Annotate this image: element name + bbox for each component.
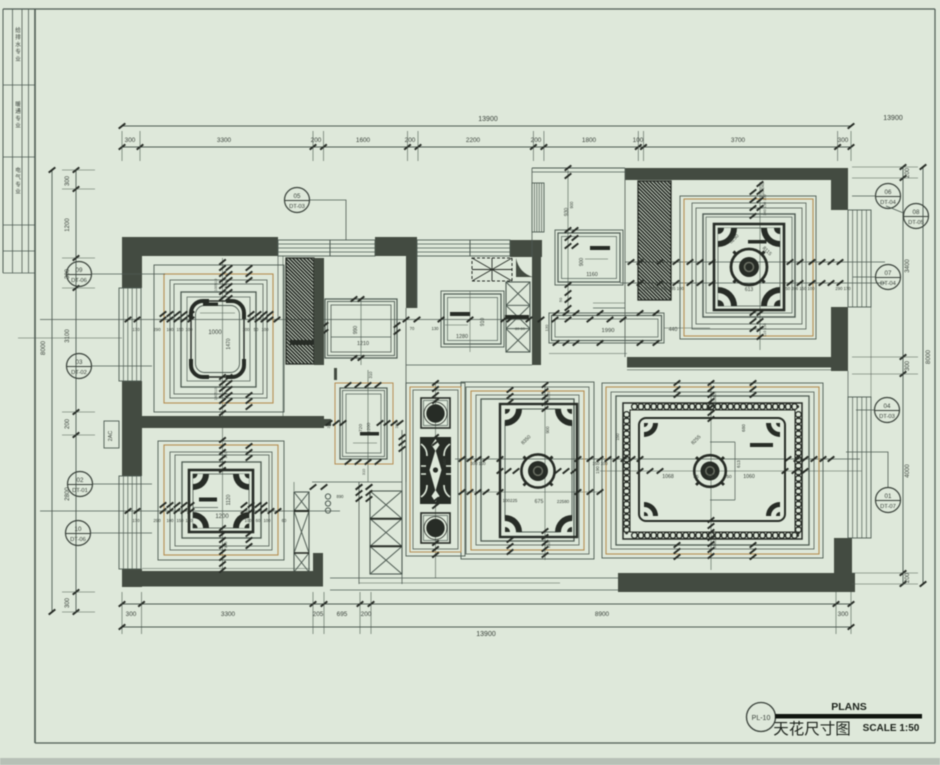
svg-text:130: 130 [544, 324, 549, 331]
svg-text:DT-04: DT-04 [880, 281, 897, 287]
svg-text:22580: 22580 [557, 499, 570, 504]
svg-text:1200: 1200 [366, 422, 372, 433]
svg-text:200: 200 [405, 137, 416, 144]
svg-text:电: 电 [15, 166, 21, 174]
svg-text:8310: 8310 [547, 392, 551, 400]
svg-text:业: 业 [15, 55, 21, 63]
svg-text:290 170: 290 170 [835, 286, 851, 291]
svg-text:210: 210 [326, 421, 331, 428]
svg-text:水: 水 [15, 40, 21, 48]
svg-text:1200: 1200 [215, 514, 229, 520]
svg-text:170: 170 [132, 518, 140, 523]
svg-text:100: 100 [262, 327, 270, 332]
svg-text:暖: 暖 [15, 100, 21, 108]
svg-text:气: 气 [15, 173, 21, 181]
svg-text:业: 业 [15, 188, 21, 196]
svg-text:300: 300 [65, 268, 71, 279]
svg-text:2AC: 2AC [108, 431, 114, 442]
svg-text:890: 890 [337, 494, 345, 499]
svg-text:10: 10 [75, 526, 82, 533]
svg-text:DT-07: DT-07 [880, 504, 896, 510]
svg-text:业: 业 [15, 122, 21, 130]
svg-text:300: 300 [838, 611, 849, 618]
svg-text:150 100: 150 100 [592, 461, 608, 466]
svg-text:30810810: 30810810 [713, 532, 717, 549]
svg-text:310: 310 [547, 542, 551, 548]
svg-text:1060: 1060 [743, 474, 755, 480]
svg-text:1200: 1200 [65, 218, 71, 232]
svg-text:310: 310 [223, 451, 228, 458]
svg-text:8000: 8000 [925, 349, 932, 364]
svg-text:290: 290 [153, 518, 161, 523]
svg-text:50: 50 [254, 327, 259, 332]
svg-text:613: 613 [736, 460, 741, 468]
svg-text:PLANS: PLANS [831, 701, 867, 713]
svg-text:720: 720 [358, 424, 364, 432]
svg-text:200: 200 [311, 137, 322, 144]
svg-text:DT-01: DT-01 [72, 488, 88, 494]
svg-text:300: 300 [125, 137, 136, 144]
svg-text:60: 60 [282, 518, 287, 523]
svg-text:150: 150 [177, 518, 185, 523]
svg-text:01: 01 [885, 493, 892, 500]
svg-text:100 150 100 285 100: 100 150 100 285 100 [644, 286, 684, 291]
svg-text:03: 03 [76, 359, 83, 366]
svg-text:440: 440 [442, 458, 447, 466]
svg-text:60: 60 [256, 518, 261, 523]
svg-text:310: 310 [223, 390, 228, 397]
svg-text:05: 05 [294, 193, 301, 200]
svg-text:200: 200 [361, 611, 372, 618]
svg-text:13900: 13900 [478, 116, 498, 123]
svg-text:13900: 13900 [883, 115, 903, 122]
svg-text:200: 200 [905, 167, 911, 178]
svg-text:3700: 3700 [731, 137, 746, 144]
svg-text:100: 100 [245, 518, 253, 523]
svg-text:340 150 100: 340 150 100 [763, 194, 767, 215]
svg-text:100: 100 [243, 327, 251, 332]
svg-text:3100: 3100 [65, 329, 71, 343]
svg-text:300: 300 [838, 137, 849, 144]
svg-text:35: 35 [693, 474, 699, 480]
svg-text:1470: 1470 [226, 338, 232, 349]
svg-text:100: 100 [167, 327, 175, 332]
svg-text:50 286 150 100: 50 286 150 100 [785, 286, 815, 291]
svg-text:2200: 2200 [466, 137, 481, 144]
svg-text:DT-05: DT-05 [908, 220, 924, 226]
svg-text:280: 280 [394, 421, 399, 428]
svg-text:100510: 100510 [214, 279, 218, 292]
svg-text:专: 专 [15, 114, 21, 122]
svg-text:通: 通 [15, 107, 21, 115]
svg-text:08: 08 [913, 209, 920, 216]
svg-text:04: 04 [884, 403, 891, 410]
svg-text:100: 100 [633, 137, 644, 144]
svg-text:1210: 1210 [357, 341, 369, 347]
svg-text:300: 300 [126, 611, 137, 618]
svg-text:613: 613 [745, 287, 754, 293]
svg-text:340: 340 [223, 541, 228, 548]
svg-text:DT-06: DT-06 [71, 278, 87, 284]
svg-text:910: 910 [480, 318, 486, 327]
svg-text:675: 675 [535, 499, 544, 505]
svg-text:1068: 1068 [662, 474, 674, 480]
svg-text:1990: 1990 [602, 328, 615, 334]
svg-text:1800: 1800 [582, 137, 597, 144]
svg-text:310: 310 [368, 371, 373, 379]
svg-text:天花尺寸图: 天花尺寸图 [773, 720, 851, 738]
svg-text:02: 02 [77, 477, 84, 484]
svg-text:100: 100 [186, 518, 194, 523]
svg-text:给: 给 [15, 26, 21, 34]
svg-text:50: 50 [558, 297, 563, 302]
svg-text:205: 205 [313, 611, 324, 618]
svg-text:310: 310 [362, 469, 366, 475]
svg-text:DT-04: DT-04 [880, 200, 897, 206]
svg-text:DT-03: DT-03 [879, 414, 895, 420]
svg-text:06: 06 [885, 189, 892, 196]
svg-text:170: 170 [132, 327, 140, 332]
svg-text:200: 200 [65, 418, 71, 429]
svg-text:3400: 3400 [905, 259, 911, 273]
svg-text:8000: 8000 [40, 340, 47, 355]
svg-text:180510: 180510 [214, 388, 218, 401]
svg-text:专: 专 [15, 180, 21, 188]
svg-text:PL-10: PL-10 [752, 715, 771, 722]
svg-text:30810810: 30810810 [713, 392, 717, 409]
svg-text:DT-06: DT-06 [70, 537, 86, 543]
svg-text:150: 150 [615, 433, 620, 441]
svg-text:100: 100 [186, 327, 194, 332]
svg-text:专: 专 [15, 48, 21, 56]
svg-text:80 60: 80 60 [515, 326, 526, 331]
svg-text:300: 300 [65, 597, 71, 608]
svg-text:8900: 8900 [595, 611, 610, 618]
svg-text:200: 200 [905, 572, 911, 583]
svg-text:50: 50 [726, 474, 732, 480]
svg-text:290: 290 [153, 327, 161, 332]
svg-text:1280: 1280 [456, 334, 468, 340]
svg-text:190: 190 [595, 466, 600, 474]
svg-text:300 150: 300 150 [470, 461, 486, 466]
svg-text:695: 695 [337, 611, 348, 618]
svg-text:150: 150 [177, 327, 185, 332]
svg-text:130: 130 [432, 326, 440, 331]
svg-text:1000: 1000 [208, 330, 222, 336]
svg-text:1160: 1160 [586, 272, 598, 278]
svg-text:1600: 1600 [356, 137, 371, 144]
svg-text:3300: 3300 [217, 137, 232, 144]
svg-text:900: 900 [569, 201, 574, 209]
svg-text:300: 300 [65, 175, 71, 186]
svg-text:DT-02: DT-02 [71, 370, 87, 376]
svg-text:110 150: 110 150 [763, 323, 767, 336]
svg-text:70: 70 [410, 326, 415, 331]
svg-text:100: 100 [167, 518, 175, 523]
svg-text:300: 300 [905, 360, 911, 371]
svg-text:680: 680 [741, 424, 746, 432]
svg-text:100225: 100225 [503, 498, 518, 503]
svg-text:4000: 4000 [905, 464, 911, 478]
svg-text:SCALE 1:50: SCALE 1:50 [863, 723, 920, 734]
svg-text:09: 09 [76, 267, 83, 274]
svg-text:990: 990 [353, 326, 359, 335]
svg-text:900: 900 [545, 426, 550, 434]
svg-text:200: 200 [531, 137, 542, 144]
svg-text:13900: 13900 [476, 631, 496, 638]
svg-text:613: 613 [708, 474, 717, 480]
svg-text:100: 100 [264, 518, 272, 523]
svg-text:3300: 3300 [221, 611, 236, 618]
svg-text:07: 07 [885, 270, 892, 277]
svg-text:排: 排 [15, 33, 21, 41]
svg-text:1120: 1120 [226, 494, 232, 505]
svg-text:340: 340 [223, 281, 228, 288]
svg-text:DT-03: DT-03 [289, 204, 305, 210]
svg-text:900: 900 [579, 258, 585, 267]
